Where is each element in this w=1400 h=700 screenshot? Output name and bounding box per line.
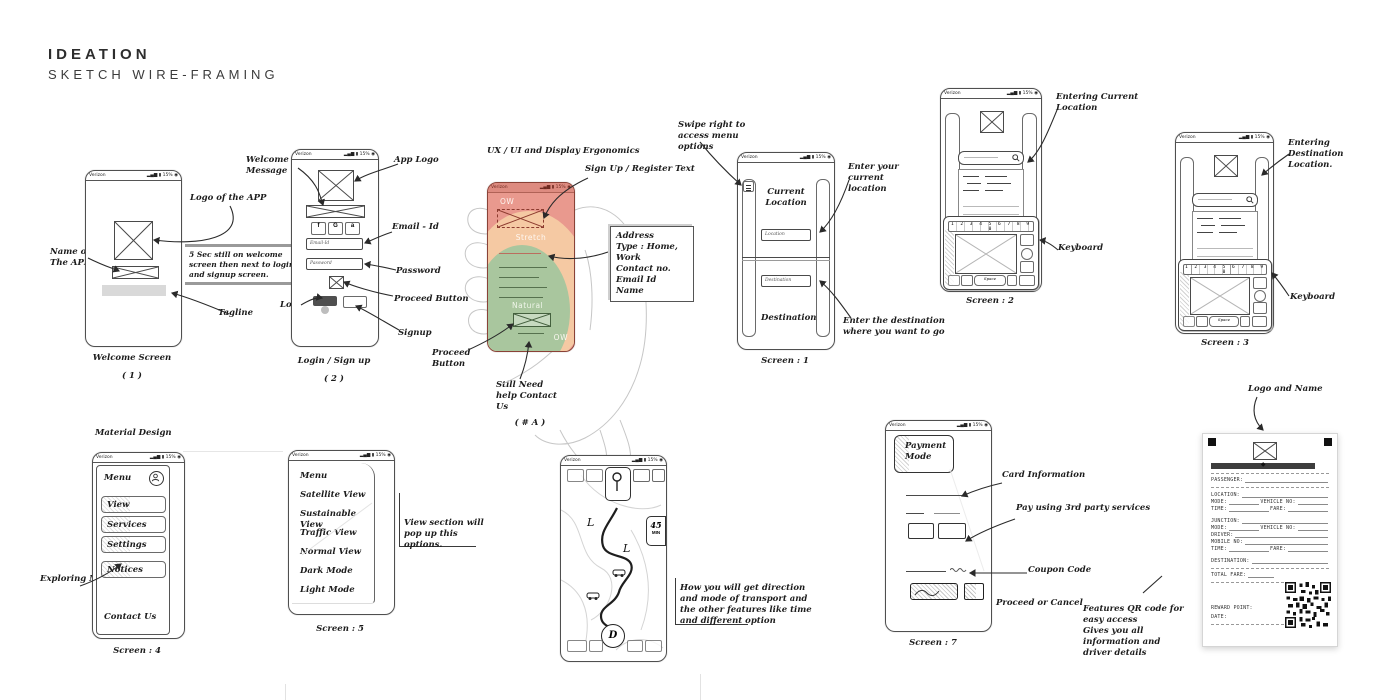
mic-key[interactable] xyxy=(1021,248,1033,260)
status-icons: ▂▄▆ ▮ 15% ◉ xyxy=(360,453,391,458)
current-location-label: Current Location xyxy=(761,187,811,209)
carrier-label: Verizon xyxy=(944,91,961,96)
list-line xyxy=(499,253,541,254)
phone-screen-7: Verizon ▂▄▆ ▮ 15% ◉ Payment Mode xyxy=(885,420,992,632)
hamburger-menu-icon[interactable] xyxy=(743,181,754,192)
go-key[interactable] xyxy=(1252,316,1267,327)
address-line: Address xyxy=(616,231,688,242)
search-icon xyxy=(1246,196,1254,204)
space-key[interactable]: Space xyxy=(974,275,1006,286)
phone-ergonomics: Verizon ▂▄▆ ▮ 15% ◉ OW Stretch Natural O… xyxy=(487,182,575,352)
toolbar-button[interactable] xyxy=(633,469,650,482)
dot-key[interactable] xyxy=(1007,275,1017,286)
status-icons: ▂▄▆ ▮ 15% ◉ xyxy=(1007,91,1038,96)
google-icon: G xyxy=(333,223,338,229)
menu-drawer: Menu View Services Settings Notices Cont… xyxy=(96,465,170,635)
status-icons: ▂▄▆ ▮ 15% ◉ xyxy=(800,155,831,160)
field-junction: JUNCTION: xyxy=(1211,518,1240,525)
social-apple-button[interactable]: a xyxy=(345,222,360,235)
mic-key[interactable] xyxy=(1254,290,1266,302)
email-field[interactable]: Email-Id xyxy=(306,238,363,250)
address-line: Type : Home, Work xyxy=(616,242,688,264)
location-input[interactable]: Location xyxy=(761,229,811,241)
bottom-bar-button[interactable] xyxy=(627,640,643,652)
carrier-label: Verizon xyxy=(292,453,309,458)
phone-screen-2: Verizon ▂▄▆ ▮ 15% ◉ 1 2 3 4 5 6 7 8 9 0 xyxy=(940,88,1042,292)
receipt-divider xyxy=(1211,487,1329,488)
destination-circle: D xyxy=(601,624,625,648)
field-total-fare: TOTAL FARE: xyxy=(1211,572,1246,579)
scribble xyxy=(911,584,957,599)
receipt-divider xyxy=(1211,568,1329,569)
number-row[interactable]: 1 2 3 4 5 6 7 8 9 0 xyxy=(1183,264,1267,275)
field-time: TIME: xyxy=(1211,546,1227,553)
field-destination: DESTINATION: xyxy=(1211,558,1250,565)
zone-ow-top-label: OW xyxy=(500,197,514,206)
list-line xyxy=(499,287,547,288)
menu-item-label: View xyxy=(102,497,165,511)
third-party-pay-button[interactable] xyxy=(908,523,934,539)
menu-item-label: Settings xyxy=(102,537,165,551)
proceed-button-icon[interactable] xyxy=(329,276,344,289)
field-mode: MODE: xyxy=(1211,525,1227,532)
eta-badge: 45 MIN xyxy=(646,516,666,546)
status-icons: ▂▄▆ ▮ 15% ◉ xyxy=(344,152,375,157)
field-fare: FARE: xyxy=(1270,546,1286,553)
avatar-icon[interactable] xyxy=(149,471,164,486)
field-fare: FARE: xyxy=(1270,506,1286,513)
space-key[interactable]: Space xyxy=(1209,316,1239,327)
status-bar: Verizon ▂▄▆ ▮ 15% ◉ xyxy=(289,451,394,461)
list-line xyxy=(499,277,539,278)
receipt-name-bar: ◆ xyxy=(1211,463,1315,469)
app-logo-placeholder-icon xyxy=(318,170,354,201)
card-detail-line[interactable] xyxy=(906,513,924,514)
receipt-logo-icon xyxy=(1253,442,1277,460)
third-party-pay-button[interactable] xyxy=(938,523,966,539)
coupon-code-line[interactable] xyxy=(906,571,946,572)
coupon-squiggle xyxy=(950,566,970,574)
keyboard-panel[interactable]: 1 2 3 4 5 6 7 8 9 0 Space xyxy=(1178,259,1272,331)
clip-mark xyxy=(1208,438,1216,446)
status-bar: Verizon ▂▄▆ ▮ 15% ◉ xyxy=(941,89,1041,99)
tagline-placeholder xyxy=(102,285,166,296)
proceed-button[interactable] xyxy=(910,583,958,600)
list-line xyxy=(499,267,547,268)
shift-key[interactable] xyxy=(948,275,960,286)
field-vehicle: VEHICLE NO: xyxy=(1260,499,1295,506)
card-detail-line2[interactable] xyxy=(934,513,960,514)
proceed-button-placeholder[interactable] xyxy=(513,313,551,327)
enter-key[interactable] xyxy=(1253,302,1267,314)
app-name-placeholder xyxy=(112,266,159,279)
destination-marker: D xyxy=(609,630,618,641)
sidebar-item-notices[interactable]: Notices xyxy=(101,561,166,578)
go-key[interactable] xyxy=(1019,275,1035,286)
svg-text:L: L xyxy=(622,542,630,555)
status-icons: ▂▄▆ ▮ 15% ◉ xyxy=(150,455,181,460)
carrier-label: Verizon xyxy=(491,185,508,190)
bottom-bar-button[interactable] xyxy=(589,640,603,652)
address-line: Contact no. xyxy=(616,264,688,275)
carrier-label: Verizon xyxy=(96,455,113,460)
pin-icon xyxy=(606,469,628,497)
list-line xyxy=(499,297,543,298)
helper-line xyxy=(518,333,544,334)
login-button[interactable] xyxy=(313,296,337,306)
keyboard-body-placeholder[interactable] xyxy=(955,234,1017,274)
phone-screen-1: Verizon ▂▄▆ ▮ 15% ◉ Current Location Loc… xyxy=(737,152,835,350)
social-google-button[interactable]: G xyxy=(328,222,343,235)
eta-time: 45 xyxy=(647,520,665,530)
view-options-panel: Menu Satellite View Sustainable View Tra… xyxy=(292,463,375,604)
zone-ow-bottom-label: OW xyxy=(554,333,568,342)
backspace-key[interactable] xyxy=(1253,277,1267,289)
toolbar-button[interactable] xyxy=(652,469,665,482)
carrier-label: Verizon xyxy=(741,155,758,160)
status-icons: ▂▄▆ ▮ 15% ◉ xyxy=(1239,135,1270,140)
phone-map-screen: Verizon ▂▄▆ ▮ 15% ◉ L L 45 MIN xyxy=(560,455,667,662)
login-thumb-mark xyxy=(321,306,329,314)
status-bar: Verizon ▂▄▆ ▮ 15% ◉ xyxy=(292,150,378,160)
search-icon xyxy=(1012,154,1020,162)
search-bar[interactable] xyxy=(1192,193,1258,207)
toolbar-button[interactable] xyxy=(586,469,603,482)
pencil-stroke xyxy=(292,463,374,603)
dot-key[interactable] xyxy=(1240,316,1250,327)
status-bar: Verizon ▂▄▆ ▮ 15% ◉ xyxy=(738,153,834,163)
zone-natural-label: Natural xyxy=(512,301,543,310)
welcome-message-placeholder xyxy=(306,205,365,218)
facebook-icon: f xyxy=(318,223,320,229)
keyboard-panel[interactable]: 1 2 3 4 5 6 7 8 9 0 Space xyxy=(943,216,1039,290)
number-row[interactable]: 1 2 3 4 5 6 7 8 9 0 xyxy=(948,221,1034,232)
status-icons: ▂▄▆ ▮ 15% ◉ xyxy=(540,185,571,190)
phone-screen-3: Verizon ▂▄▆ ▮ 15% ◉ 1 2 3 4 5 6 7 8 9 0 xyxy=(1175,132,1274,334)
field-time: TIME: xyxy=(1211,506,1227,513)
carrier-label: Verizon xyxy=(295,152,312,157)
qr-code xyxy=(1285,582,1331,628)
left-edge-rail xyxy=(742,179,756,337)
field-passenger: PASSENGER: xyxy=(1211,477,1243,484)
car-icon xyxy=(587,593,599,600)
backspace-key[interactable] xyxy=(1020,234,1034,246)
app-logo-placeholder-icon xyxy=(1214,155,1238,177)
origin-pin-panel[interactable] xyxy=(605,467,631,501)
field-mode: MODE: xyxy=(1211,499,1227,506)
destination-label: Destination xyxy=(761,313,811,324)
field-reward-point: REWARD POINT: xyxy=(1211,605,1253,612)
field-date: DATE: xyxy=(1211,614,1227,621)
right-edge-rail xyxy=(816,179,830,337)
keyboard-body-placeholder[interactable] xyxy=(1190,277,1250,315)
signup-button[interactable] xyxy=(343,296,367,308)
clip-mark xyxy=(1324,438,1332,446)
shift-key[interactable] xyxy=(1183,316,1195,327)
sidebar-item-view[interactable]: View xyxy=(101,496,166,513)
field-vehicle: VEHICLE NO: xyxy=(1260,525,1295,532)
toolbar-button[interactable] xyxy=(567,469,584,482)
phone-login-screen: Verizon ▂▄▆ ▮ 15% ◉ f G a Email-Id Passw… xyxy=(291,149,379,347)
field-location: LOCATION: xyxy=(1211,492,1240,499)
menu-item-label: Services xyxy=(102,517,165,531)
receipt: ◆ PASSENGER: LOCATION: MODE:VEHICLE NO: … xyxy=(1202,433,1338,647)
carrier-label: Verizon xyxy=(1179,135,1196,140)
contact-us-link[interactable]: Contact Us xyxy=(104,612,156,623)
apple-icon: a xyxy=(351,223,354,229)
section-divider xyxy=(742,257,830,258)
phone-screen-4: Verizon ▂▄▆ ▮ 15% ◉ Menu View Services S… xyxy=(92,452,185,639)
search-bar[interactable] xyxy=(958,151,1024,165)
enter-key[interactable] xyxy=(1020,261,1034,273)
status-bar: Verizon ▂▄▆ ▮ 15% ◉ xyxy=(93,453,184,463)
sidebar-item-settings[interactable]: Settings xyxy=(101,536,166,553)
phone-welcome-screen: Verizon ▂▄▆ ▮ 15% ◉ xyxy=(85,170,182,347)
zone-stretch-label: Stretch xyxy=(488,233,574,242)
phone-screen-5: Verizon ▂▄▆ ▮ 15% ◉ Menu Satellite View … xyxy=(288,450,395,615)
symbols-key[interactable] xyxy=(961,275,973,286)
bottom-bar-button[interactable] xyxy=(645,640,662,652)
carrier-label: Verizon xyxy=(89,173,106,178)
eta-unit: MIN xyxy=(647,530,665,535)
address-line: Name xyxy=(616,286,688,297)
section-divider xyxy=(742,260,830,261)
status-icons: ▂▄▆ ▮ 15% ◉ xyxy=(147,173,178,178)
password-field[interactable]: Password xyxy=(306,258,363,270)
address-note: Address Type : Home, Work Contact no. Em… xyxy=(610,226,694,302)
app-logo-placeholder-icon xyxy=(114,221,153,260)
address-line: Email Id xyxy=(616,275,688,286)
signup-text-placeholder xyxy=(497,209,544,228)
status-bar: Verizon ▂▄▆ ▮ 15% ◉ xyxy=(1176,133,1273,143)
menu-header: Menu xyxy=(104,473,131,484)
bottom-bar-button[interactable] xyxy=(567,640,587,652)
status-bar: Verizon ▂▄▆ ▮ 15% ◉ xyxy=(488,183,574,193)
hand-sketch xyxy=(0,0,1400,700)
field-mobile: MOBILE NO: xyxy=(1211,539,1243,546)
menu-item-label: Notices xyxy=(102,562,165,576)
receipt-divider xyxy=(1211,473,1329,474)
app-logo-placeholder-icon xyxy=(980,111,1004,133)
symbols-key[interactable] xyxy=(1196,316,1208,327)
ideation-board: IDEATION SKETCH WIRE-FRAMING Verizon ▂▄▆… xyxy=(0,0,1400,700)
destination-input[interactable]: Destination xyxy=(761,275,811,287)
card-number-line[interactable] xyxy=(906,495,962,496)
social-facebook-button[interactable]: f xyxy=(311,222,326,235)
car-icon xyxy=(613,570,625,577)
svg-text:L: L xyxy=(586,516,594,529)
field-driver: DRIVER: xyxy=(1211,532,1233,539)
status-bar: Verizon ▂▄▆ ▮ 15% ◉ xyxy=(86,171,181,181)
sidebar-item-services[interactable]: Services xyxy=(101,516,166,533)
cancel-button[interactable] xyxy=(964,583,984,600)
